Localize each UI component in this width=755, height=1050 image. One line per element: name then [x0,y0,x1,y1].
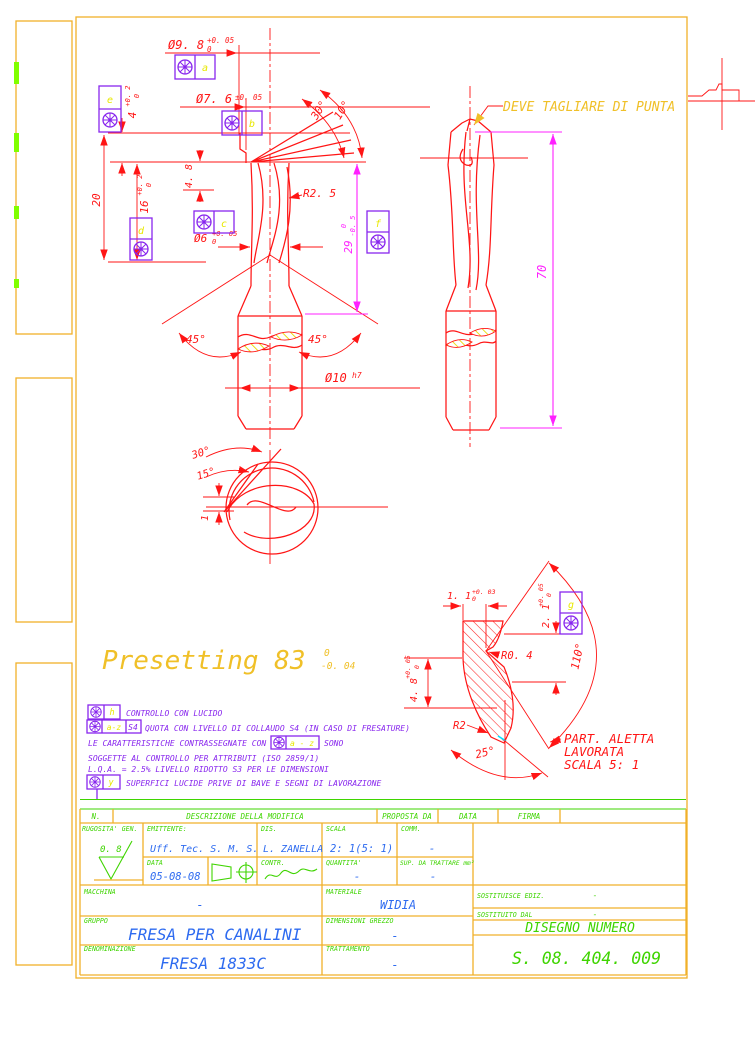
dim-s30: 30° [189,445,212,463]
tb-trattamento-value: - [391,958,398,972]
deve-tagliare-label: DEVE TAGLIARE DI PUNTA [502,100,675,115]
tb-sost-dal-value: - [593,910,598,919]
tb-n-label: N. [90,812,100,821]
det-d21-tol-top: +0. 05 [537,583,545,607]
det-a25: 25° [474,744,496,761]
tb-contr-label: CONTR. [261,859,285,867]
drawing-sheet: Ø9. 8 +0. 05 0 Ø7. 6 ±0. 05 4 +0. 2 0 20… [0,0,755,1050]
title-block: N. DESCRIZIONE DELLA MODIFICA PROPOSTA D… [80,800,686,976]
tolerance-frame-f: f [367,211,389,253]
dim-d29: 29 [342,240,355,253]
frame-letters-s4: S4 [128,723,138,732]
dim-d6: Ø6 [194,232,208,245]
dim-d4: 4 [126,112,139,119]
dim-s15: 15° [195,466,217,483]
corner-profile-symbol [688,58,755,130]
dim-a45-right: 45° [308,333,328,346]
note-1: CONTROLLO CON LUCIDO [126,709,223,718]
projection-symbol [212,862,257,883]
note-2: QUOTA CON LIVELLO DI COLLAUDO S4 (IN CAS… [145,724,410,733]
frame-letter-c: c [221,219,227,230]
tb-dis-label: DIS. [260,825,277,833]
tb-scala-value: 2: 1(5: 1) [330,843,393,855]
dim-d98-tol-top: +0. 05 [207,36,235,45]
break-hatch-left [238,343,269,352]
det-r04: R0. 4 [501,650,533,662]
tb-materiale-value: WIDIA [380,898,416,912]
front-view: Ø9. 8 +0. 05 0 Ø7. 6 ±0. 05 4 +0. 2 0 20… [90,28,430,447]
dim-d16-tol-top: +0. 2 [136,174,144,195]
note-3a: LE CARATTERISTICHE CONTRASSEGNATE CON [88,739,266,748]
det-caption-3: SCALA 5: 1 [564,757,639,772]
runout-icon [103,113,117,127]
frame-letter-f: f [375,219,382,230]
runout-icon [90,721,101,732]
sheet-borders [14,17,687,978]
dim-a30-top: 30° [308,98,330,123]
tb-disegno-value: S. 08. 404. 009 [512,949,661,968]
det-r2: R2 [453,720,466,732]
note-frame-az2: a - z [271,736,319,749]
frame-letter-y: y [107,778,114,788]
tb-disegno-label: DISEGNO NUMERO [524,921,635,936]
note-3b: SONO [324,739,343,748]
end-view-outline [224,449,318,554]
drawing-canvas: Ø9. 8 +0. 05 0 Ø7. 6 ±0. 05 4 +0. 2 0 20… [0,0,755,1050]
det-d11: 1. 1 [447,591,471,602]
break-hatch-left [446,340,472,348]
main-border [76,17,687,978]
tb-sup-value: - [430,870,437,883]
margin-strip-1 [16,21,72,334]
tb-emittente-label: EMITTENTE: [147,825,187,833]
dim-d16-tol-bot: 0 [145,183,153,187]
tb-sost-ediz-value: - [593,891,598,900]
tb-macchina-value: - [196,898,203,912]
dim-d98: Ø9. 8 [168,38,204,52]
frame-letter-h: h [109,708,114,718]
tb-dis-value: L. ZANELLA [263,844,323,855]
break-hatch-right [470,328,496,336]
det-d48-tol-top: +0. 05 [404,655,412,679]
tb-data2-value: 05-08-08 [150,871,201,883]
margin-strip-2 [16,378,72,622]
tb-proposta-label: PROPOSTA DA [382,812,432,821]
tb-sost-ediz-label: SOSTITUISCE EDIZ. [477,892,545,900]
tolerance-frame-b: b [222,111,262,135]
dim-r25: R2. 5 [303,187,336,200]
runout-icon [178,60,192,74]
tb-quantita-label: QUANTITA' [326,859,362,867]
frame-letter-g: g [568,600,574,611]
tb-dim-grezzo-label: DIMENSIONI GREZZO [325,917,394,925]
tb-trattamento-label: TRATTAMENTO [326,945,370,953]
det-d21-tol-bot: 0 [545,593,553,597]
dim-a45-left: 45° [186,333,206,346]
tb-dim-grezzo-value: - [391,929,398,943]
runout-icon [564,616,578,630]
break-hatch-right [271,332,302,340]
note-4: SOGGETTE AL CONTROLLO PER ATTRIBUTI (ISO… [88,754,319,763]
dim-d29-tol-bot: -0. 5 [349,215,357,236]
frame-letters-az2: a - z [290,739,314,748]
tb-firma-label: FIRMA [518,812,541,821]
runout-icon [371,235,385,249]
dim-d29-tol-top: 0 [340,224,348,228]
presetting-label: Presetting 83 [102,646,306,676]
runout-icon [134,242,148,256]
dim-d4-tol-bot: 0 [133,94,141,98]
tb-quantita-value: - [354,870,361,883]
dim-d10: Ø10 [325,371,347,385]
det-d11-tol-bot: 0 [472,595,476,603]
tb-emittente-value: Uff. Tec. S. M. S. [150,844,258,855]
note-frame-az-s4: a-z S4 [87,720,141,733]
dim-d16: 16 [138,200,151,214]
runout-icon [91,707,102,718]
frame-letter-b: b [249,119,255,130]
tb-gruppo-label: GRUPPO [84,917,108,925]
det-d48-tol-bot: 0 [413,665,421,669]
side-view-outline [446,119,496,430]
dim-d6-tol-bot: 0 [212,238,216,246]
dim-d10-fit: h7 [352,371,362,380]
tb-rugosita-label: RUGOSITA' GEN. [82,825,138,833]
frame-letters-az: a-z [107,723,122,732]
deve-leader [474,106,503,125]
dim-s1: 1 [200,515,211,521]
frame-letter-d: d [138,226,145,237]
tb-comm-label: COMM. [401,825,421,833]
runout-icon [197,215,211,229]
tb-scala-label: SCALA [326,825,346,833]
tb-gruppo-value: FRESA PER CANALINI [128,925,302,944]
frame-letter-a: a [202,63,208,74]
presetting-annotation: Presetting 83 0 -0. 04 [102,646,356,676]
notes-block: h CONTROLLO CON LUCIDO a-z S4 QUOTA CON … [87,705,410,799]
end-view-spiral: 30° 15° 1 [189,445,388,564]
tb-denominazione-value: FRESA 1833C [160,954,266,973]
note-5: L.Q.A. = 2.5% LIVELLO RIDOTTO S3 PER LE … [88,765,329,774]
tb-sost-dal-label: SOSTITUITO DAL [477,911,533,919]
side-view: 70 DEVE TAGLIARE DI PUNTA [420,86,675,447]
tb-data2-label: DATA [146,859,163,867]
dim-d20: 20 [90,193,103,207]
note-frame-h: h [88,705,120,719]
tolerance-frame-a: a [175,55,215,79]
note-6: SUPERFICI LUCIDE PRIVE DI BAVE E SEGNI D… [126,779,381,788]
tb-sup-label: SUP. DA TRATTARE mm² [400,860,475,867]
det-d48: 4. 8 [409,678,420,702]
detail-view: 1. 1 +0. 03 0 2. 1 +0. 05 0 R0. 4 110° 4… [404,561,654,780]
runout-icon [90,777,101,788]
tolerance-frame-d: d [130,218,152,260]
tb-denominazione-label: DENOMINAZIONE [83,945,136,953]
contr-signature [265,869,317,879]
tb-comm-value: - [429,842,436,855]
tb-data1-label: DATA [458,812,477,821]
presetting-tol-bot: -0. 04 [321,661,356,672]
presetting-tol-top: 0 [324,648,330,659]
tb-rugosita-value: 0. 8 [100,845,122,855]
margin-strip-3 [16,663,72,965]
dim-d76-tol: ±0. 05 [235,93,263,102]
dim-d98-tol-bot: 0 [207,45,212,54]
dim-d4-tol-top: +0. 2 [124,85,132,106]
dim-d76: Ø7. 6 [196,92,232,106]
tb-materiale-label: MATERIALE [325,888,362,896]
dim-d48: 4. 8 [184,164,195,188]
runout-icon [225,116,239,130]
runout-icon [274,737,285,748]
tb-descr-label: DESCRIZIONE DELLA MODIFICA [185,812,303,821]
det-a110: 110° [568,642,586,671]
note-frame-y: y [87,775,120,789]
dim-d70: 70 [535,265,549,279]
end-view-dims [203,448,262,525]
tolerance-frame-e: e [99,86,121,132]
tb-macchina-label: MACCHINA [83,888,116,896]
frame-letter-e: e [107,95,113,106]
